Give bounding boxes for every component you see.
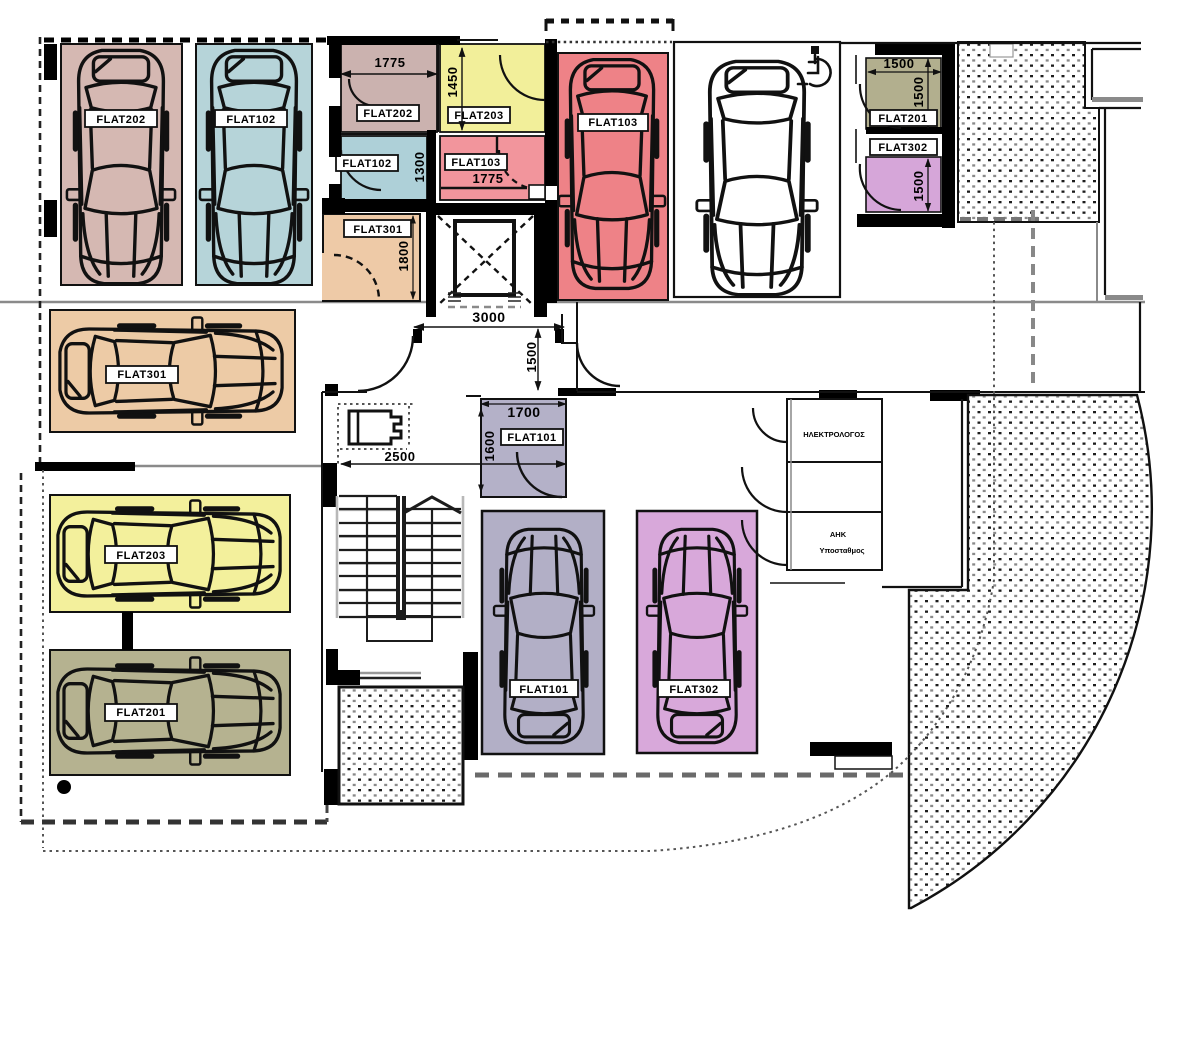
- svg-text:1600: 1600: [482, 431, 497, 462]
- svg-text:3000: 3000: [472, 309, 505, 325]
- svg-text:2500: 2500: [385, 449, 416, 464]
- svg-text:FLAT102: FLAT102: [342, 158, 391, 170]
- svg-text:FLAT101: FLAT101: [507, 432, 556, 444]
- svg-text:FLAT103: FLAT103: [588, 117, 637, 129]
- svg-text:FLAT203: FLAT203: [116, 550, 165, 562]
- svg-text:FLAT302: FLAT302: [878, 142, 927, 154]
- svg-text:Υποσταθμος: Υποσταθμος: [819, 546, 864, 555]
- svg-text:1300: 1300: [412, 152, 427, 183]
- svg-text:1775: 1775: [375, 55, 406, 70]
- svg-text:1700: 1700: [507, 404, 540, 420]
- svg-text:1500: 1500: [884, 56, 915, 71]
- svg-text:1500: 1500: [524, 342, 539, 373]
- svg-text:FLAT301: FLAT301: [117, 369, 166, 381]
- svg-text:FLAT102: FLAT102: [226, 114, 275, 126]
- svg-text:1500: 1500: [911, 171, 926, 202]
- svg-text:1500: 1500: [911, 77, 926, 108]
- svg-text:1450: 1450: [445, 67, 460, 98]
- svg-text:1775: 1775: [473, 171, 504, 186]
- svg-text:FLAT202: FLAT202: [363, 108, 412, 120]
- svg-text:FLAT103: FLAT103: [451, 157, 500, 169]
- svg-text:FLAT302: FLAT302: [669, 684, 718, 696]
- svg-text:FLAT201: FLAT201: [878, 113, 927, 125]
- svg-text:ΑΗΚ: ΑΗΚ: [830, 530, 847, 539]
- svg-text:FLAT202: FLAT202: [96, 114, 145, 126]
- svg-text:FLAT201: FLAT201: [116, 707, 165, 719]
- svg-text:1800: 1800: [396, 241, 411, 272]
- svg-text:FLAT301: FLAT301: [353, 224, 402, 236]
- svg-text:FLAT101: FLAT101: [519, 684, 568, 696]
- svg-text:ΗΛΕΚΤΡΟΛΟΓΟΣ: ΗΛΕΚΤΡΟΛΟΓΟΣ: [803, 430, 865, 439]
